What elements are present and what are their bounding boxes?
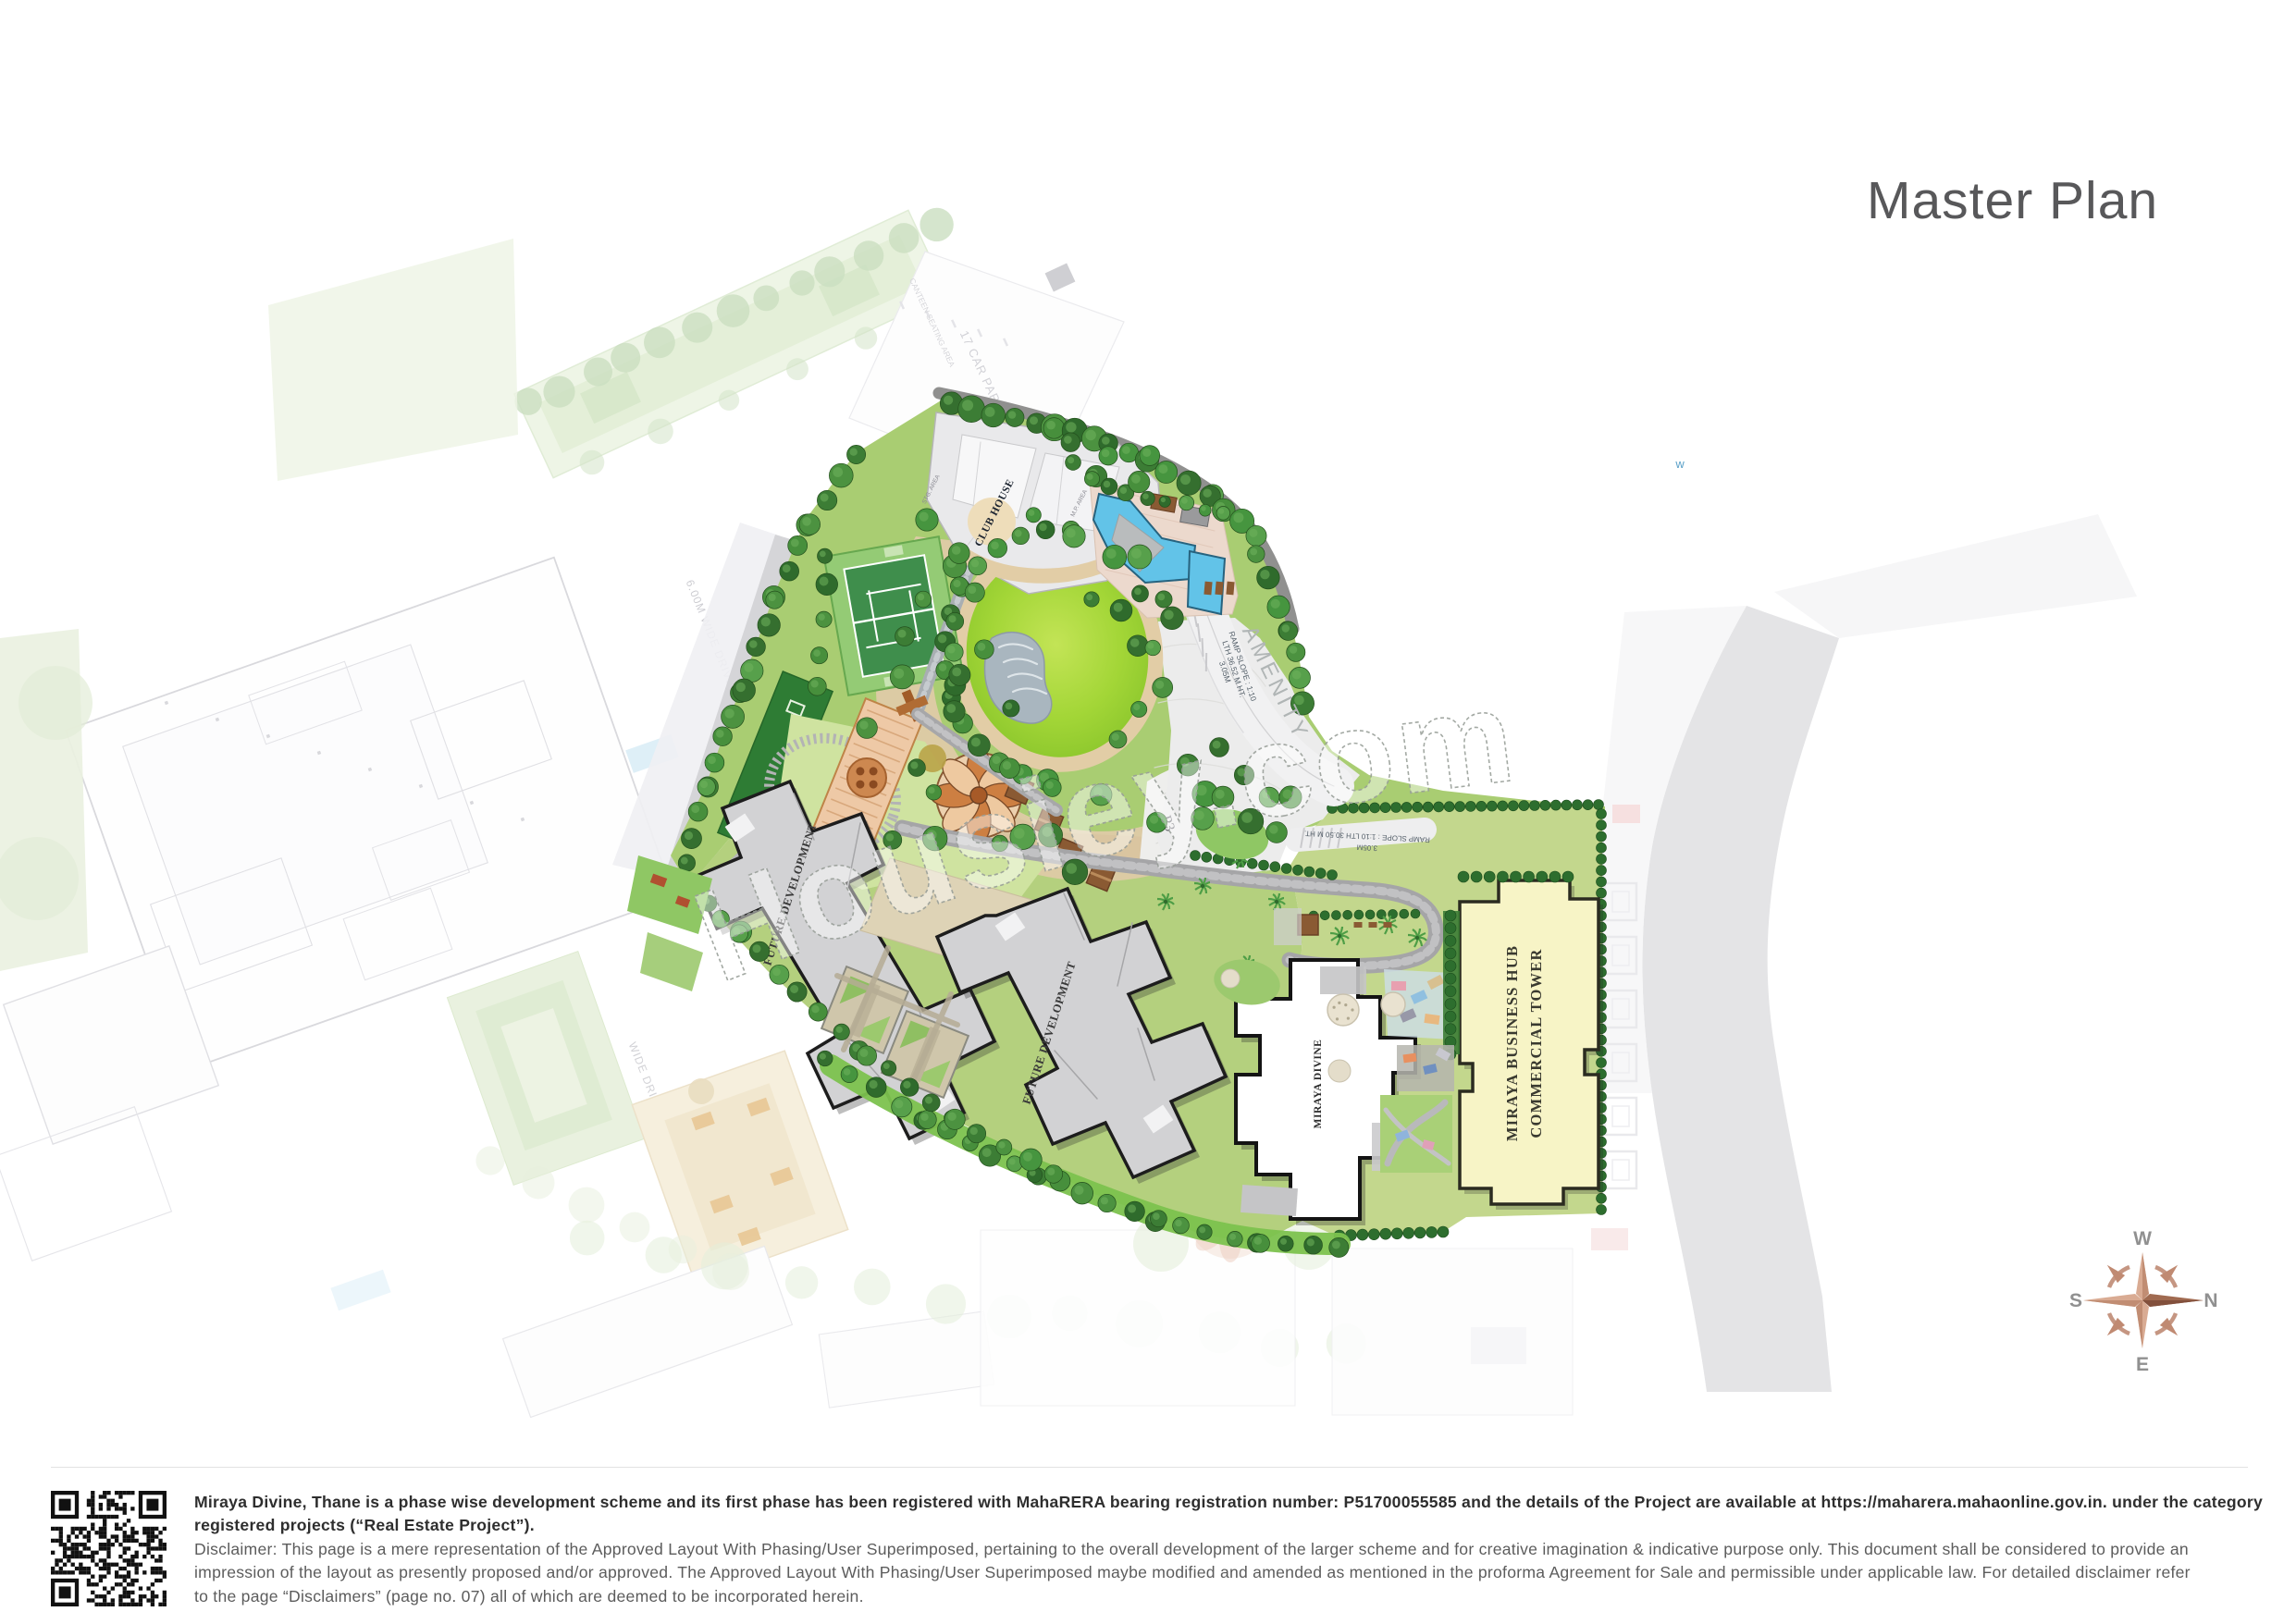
svg-text:W: W (2133, 1228, 2152, 1249)
svg-text:MIRAYA BUSINESS HUB: MIRAYA BUSINESS HUB (1503, 945, 1521, 1141)
svg-text:w: w (1674, 457, 1685, 471)
svg-text:MIRAYA DIVINE: MIRAYA DIVINE (1313, 1040, 1324, 1129)
svg-text:N: N (2203, 1290, 2217, 1311)
svg-text:S: S (2069, 1290, 2082, 1311)
svg-text:E: E (2136, 1354, 2149, 1375)
svg-text:COMMERCIAL TOWER: COMMERCIAL TOWER (1527, 948, 1545, 1138)
svg-text:3.05M: 3.05M (1356, 843, 1377, 852)
